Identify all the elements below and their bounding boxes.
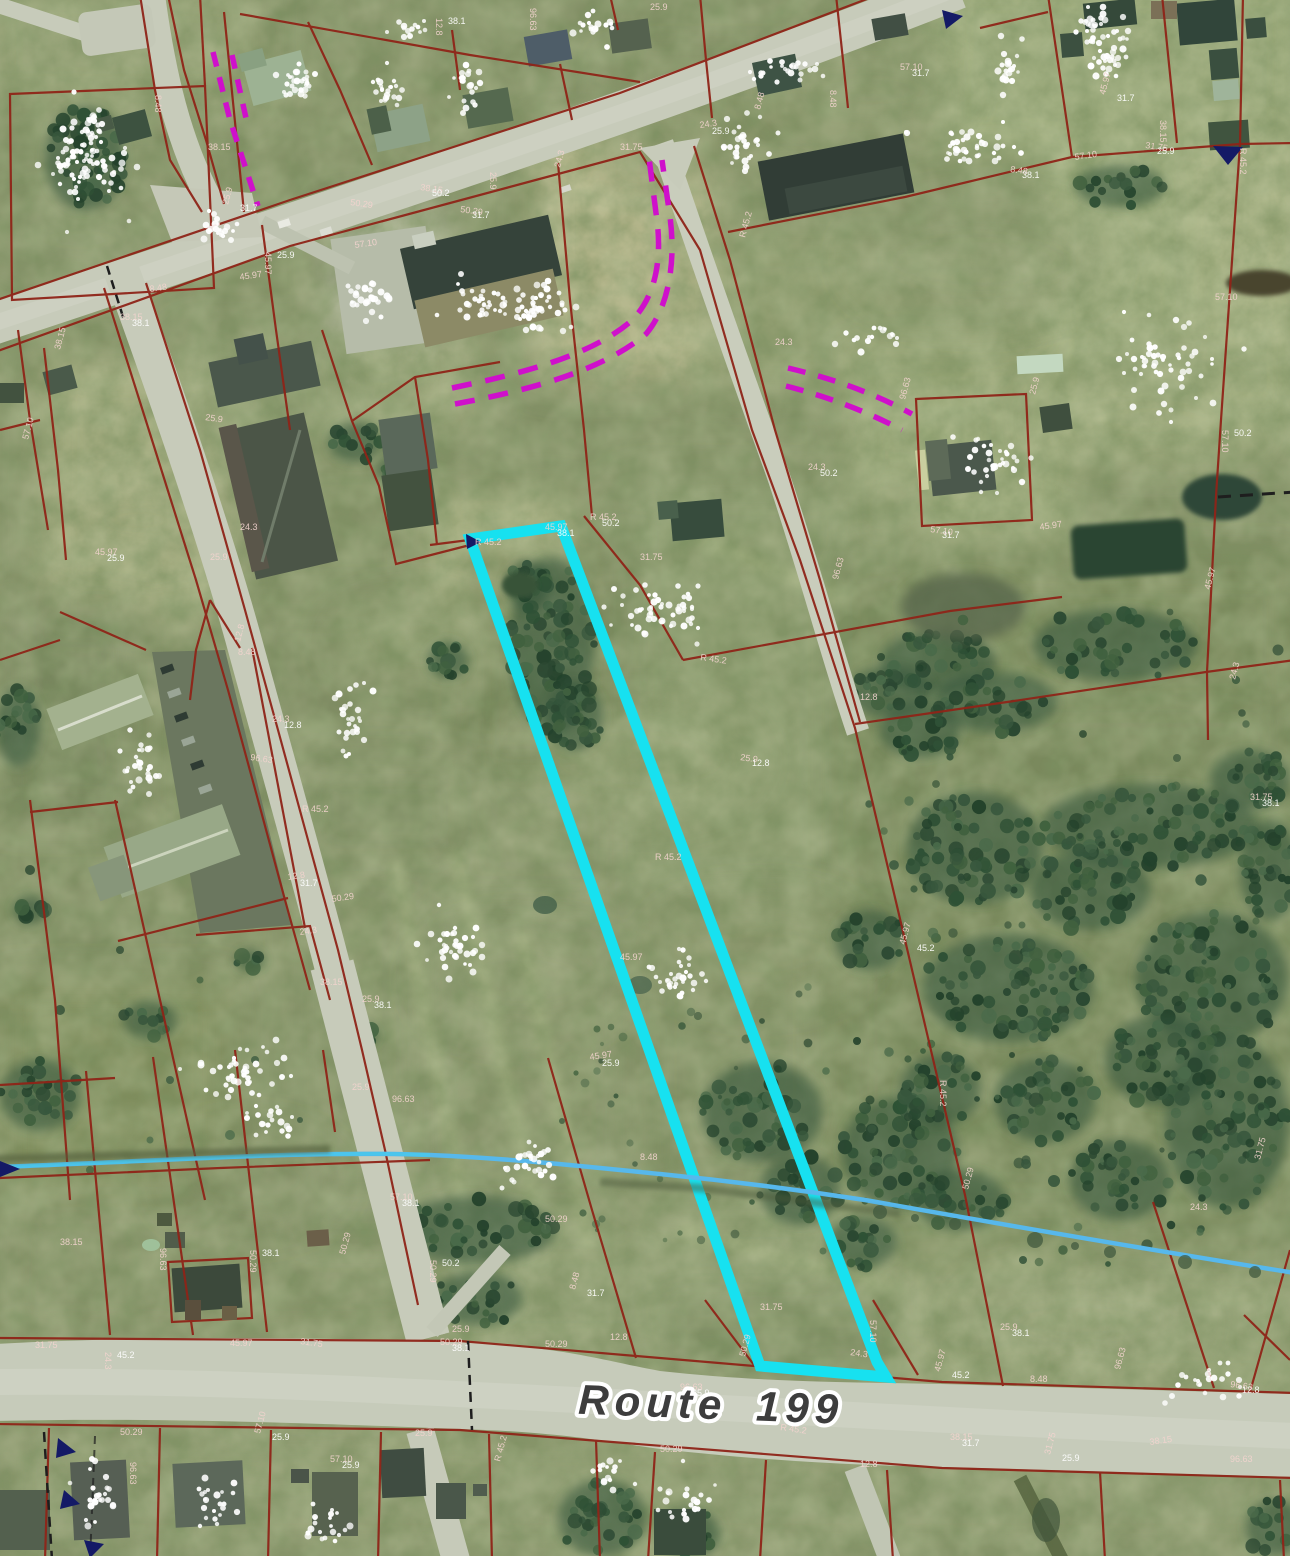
svg-text:8.48: 8.48: [238, 647, 256, 657]
svg-text:45.2: 45.2: [917, 943, 935, 953]
svg-text:25.9: 25.9: [352, 1082, 370, 1092]
svg-text:31.75: 31.75: [640, 552, 663, 562]
svg-text:38.1: 38.1: [402, 1198, 420, 1208]
svg-text:38.1: 38.1: [374, 1000, 392, 1010]
svg-text:50.2: 50.2: [820, 468, 838, 478]
svg-text:31.75: 31.75: [760, 1302, 783, 1312]
svg-text:12.8: 12.8: [284, 720, 302, 730]
svg-text:31.7: 31.7: [587, 1288, 605, 1298]
svg-text:25.9: 25.9: [1157, 146, 1175, 156]
svg-text:R 45.2: R 45.2: [302, 804, 329, 814]
svg-text:12.8: 12.8: [1242, 1385, 1260, 1395]
svg-text:96.63: 96.63: [528, 8, 538, 31]
svg-text:31.7: 31.7: [300, 878, 318, 888]
svg-text:96.63: 96.63: [128, 1462, 138, 1485]
svg-text:50.29: 50.29: [545, 1339, 568, 1349]
svg-text:38.15: 38.15: [1158, 120, 1168, 143]
svg-text:45.97: 45.97: [230, 1338, 253, 1348]
svg-text:38.1: 38.1: [557, 528, 575, 538]
svg-text:57.10: 57.10: [1215, 292, 1238, 302]
svg-text:24.3: 24.3: [240, 522, 258, 532]
svg-text:12.8: 12.8: [434, 18, 444, 36]
svg-text:25.9: 25.9: [602, 1058, 620, 1068]
svg-text:25.9: 25.9: [452, 1324, 470, 1334]
svg-text:38.1: 38.1: [262, 1248, 280, 1258]
svg-text:96.63: 96.63: [1230, 1454, 1253, 1464]
svg-text:38.1: 38.1: [1012, 1328, 1030, 1338]
svg-text:50.29: 50.29: [120, 1427, 143, 1437]
svg-text:8.48: 8.48: [640, 1152, 658, 1162]
svg-text:8.48: 8.48: [1030, 1374, 1048, 1384]
svg-text:96.63: 96.63: [158, 1248, 168, 1271]
svg-text:12.8: 12.8: [610, 1332, 628, 1342]
svg-text:31.7: 31.7: [962, 1438, 980, 1448]
svg-text:38.1: 38.1: [452, 1343, 470, 1353]
svg-text:24.3: 24.3: [775, 337, 793, 347]
svg-text:38.15: 38.15: [320, 977, 343, 987]
svg-text:38.15: 38.15: [208, 142, 231, 152]
svg-text:31.7: 31.7: [472, 210, 490, 220]
svg-text:31.7: 31.7: [912, 68, 930, 78]
svg-text:50.2: 50.2: [442, 1258, 460, 1268]
svg-text:31.75: 31.75: [35, 1340, 58, 1350]
svg-text:50.29: 50.29: [545, 1214, 568, 1224]
svg-text:45.2: 45.2: [952, 1370, 970, 1380]
svg-text:57.10: 57.10: [868, 1320, 878, 1343]
svg-text:57.10: 57.10: [1220, 430, 1230, 453]
svg-text:R 45.2: R 45.2: [655, 852, 682, 862]
svg-text:31.7: 31.7: [1117, 93, 1135, 103]
svg-text:31.7: 31.7: [942, 530, 960, 540]
svg-text:96.63: 96.63: [392, 1094, 415, 1104]
svg-text:12.8: 12.8: [860, 1459, 878, 1469]
svg-text:24.3: 24.3: [1190, 1202, 1208, 1212]
svg-text:24.3: 24.3: [103, 1352, 113, 1370]
svg-text:50.29: 50.29: [428, 1260, 438, 1283]
svg-text:38.1: 38.1: [448, 16, 466, 26]
svg-text:50.29: 50.29: [660, 1444, 683, 1454]
svg-text:50.2: 50.2: [602, 518, 620, 528]
svg-text:45.2: 45.2: [117, 1350, 135, 1360]
svg-text:45.97: 45.97: [620, 952, 643, 962]
svg-text:25.9: 25.9: [488, 172, 498, 190]
svg-text:31.75: 31.75: [620, 142, 643, 152]
svg-text:38.1: 38.1: [132, 318, 150, 328]
svg-text:50.2: 50.2: [432, 188, 450, 198]
svg-text:R 45.2: R 45.2: [1238, 148, 1248, 175]
svg-text:50.29: 50.29: [248, 1250, 258, 1273]
svg-text:25.9: 25.9: [107, 553, 125, 563]
svg-text:38.1: 38.1: [1022, 170, 1040, 180]
svg-text:R 45.2: R 45.2: [475, 537, 502, 547]
svg-text:25.9: 25.9: [650, 2, 668, 12]
svg-text:38.1: 38.1: [1262, 798, 1280, 808]
svg-text:38.15: 38.15: [60, 1237, 83, 1247]
svg-text:12.8: 12.8: [752, 758, 770, 768]
svg-text:25.9: 25.9: [712, 126, 730, 136]
svg-text:8.48: 8.48: [828, 90, 838, 108]
svg-text:50.2: 50.2: [1234, 428, 1252, 438]
svg-text:25.9: 25.9: [1062, 1453, 1080, 1463]
svg-text:25.9: 25.9: [277, 250, 295, 260]
svg-text:31.7: 31.7: [240, 203, 258, 213]
svg-text:25.9: 25.9: [342, 1460, 360, 1470]
svg-text:8.48: 8.48: [153, 95, 163, 113]
svg-text:25.9: 25.9: [272, 1432, 290, 1442]
svg-text:R 45.2: R 45.2: [938, 1080, 948, 1107]
svg-text:25.9: 25.9: [210, 552, 228, 562]
svg-text:12.8: 12.8: [860, 692, 878, 702]
svg-text:25.9: 25.9: [415, 1428, 433, 1438]
svg-text:45.97: 45.97: [263, 252, 273, 275]
